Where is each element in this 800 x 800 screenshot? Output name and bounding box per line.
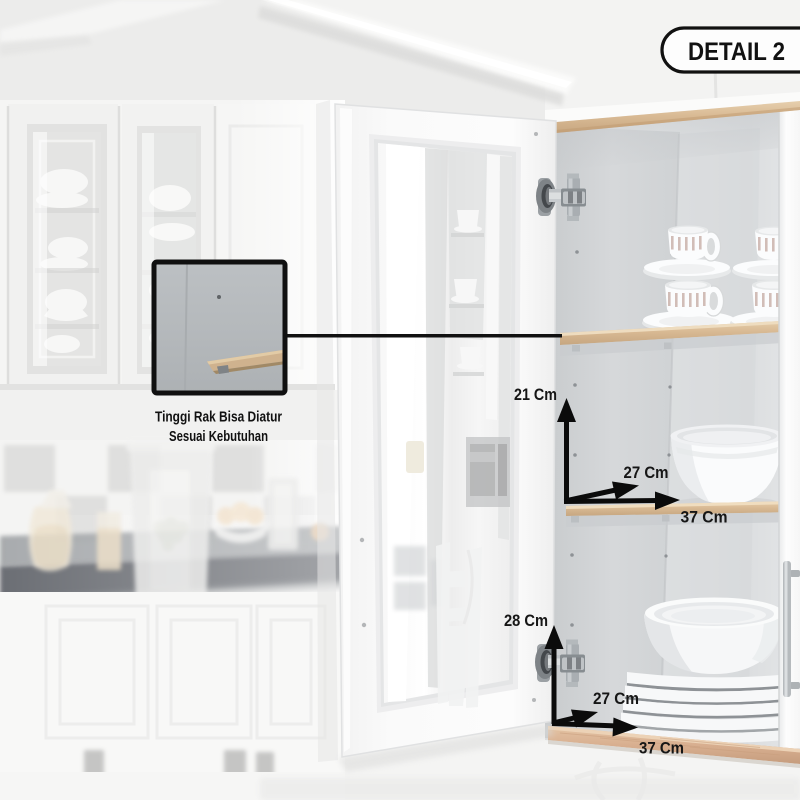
svg-text:28 Cm: 28 Cm bbox=[504, 612, 548, 630]
svg-text:DETAIL 2: DETAIL 2 bbox=[688, 38, 785, 66]
svg-text:27 Cm: 27 Cm bbox=[624, 464, 669, 482]
svg-text:Sesuai Kebutuhan: Sesuai Kebutuhan bbox=[169, 428, 268, 445]
svg-text:21 Cm: 21 Cm bbox=[514, 386, 557, 404]
svg-text:37 Cm: 37 Cm bbox=[639, 740, 684, 758]
svg-text:Tinggi Rak Bisa Diatur: Tinggi Rak Bisa Diatur bbox=[155, 409, 282, 426]
svg-text:27 Cm: 27 Cm bbox=[593, 690, 639, 708]
svg-text:37 Cm: 37 Cm bbox=[681, 509, 728, 527]
